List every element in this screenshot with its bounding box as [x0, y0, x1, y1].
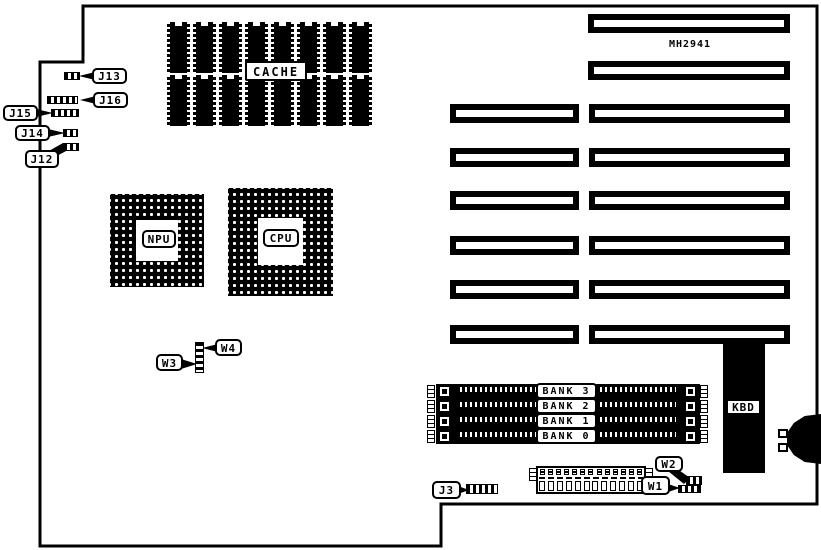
label-j12: J12	[25, 150, 59, 168]
chip-notch	[227, 22, 234, 26]
cache-chip	[167, 75, 190, 126]
cache-label: CACHE	[245, 61, 307, 81]
connector-pad	[613, 469, 618, 475]
label-j3: J3	[432, 481, 461, 499]
chip-notch	[331, 75, 338, 79]
bank-clip	[686, 402, 695, 411]
chip-notch	[357, 75, 364, 79]
din-pin-top	[778, 429, 788, 438]
bank-end-cap	[427, 400, 435, 413]
label-j15: J15	[3, 105, 38, 121]
connector-pad	[592, 481, 598, 491]
connector-pad	[566, 481, 572, 491]
expansion-slot-short	[450, 148, 579, 167]
expansion-slot-short	[450, 325, 579, 344]
kbd-label: KBD	[726, 399, 761, 415]
connector-pad	[548, 469, 553, 475]
connector-pad	[610, 481, 616, 491]
connector-pad	[628, 481, 634, 491]
bank-clip	[440, 402, 449, 411]
npu-label: NPU	[142, 230, 176, 248]
bank-end-cap	[700, 400, 708, 413]
bottom-connector-strip	[536, 466, 646, 494]
label-w4: W4	[215, 339, 242, 356]
label-j13: J13	[92, 68, 127, 84]
chip-notch	[201, 22, 208, 26]
expansion-slot-short	[450, 191, 579, 210]
cache-chip	[271, 75, 294, 126]
jumper-j12	[63, 143, 79, 151]
chip-notch	[331, 22, 338, 26]
connector-pad	[539, 481, 545, 491]
connector-pad	[540, 469, 545, 475]
cache-chip	[349, 75, 372, 126]
expansion-slot-long	[589, 191, 790, 210]
cache-chip	[193, 22, 216, 73]
connector-pad	[572, 469, 577, 475]
expansion-slot-short	[450, 280, 579, 299]
cache-chip	[193, 75, 216, 126]
bank-end-cap	[700, 415, 708, 428]
jumper-j13	[64, 72, 80, 80]
chip-notch	[253, 22, 260, 26]
connector-pad	[601, 481, 607, 491]
connector-pad	[548, 481, 554, 491]
label-j16: J16	[93, 92, 128, 108]
label-j14: J14	[15, 125, 50, 141]
bank-clip	[440, 387, 449, 396]
bank-end-cap	[700, 430, 708, 443]
bank-clip	[686, 387, 695, 396]
connector-pad	[557, 481, 563, 491]
connector-pad	[619, 481, 625, 491]
label-w3: W3	[156, 354, 183, 371]
label-w2: W2	[655, 456, 683, 472]
bank-end-cap	[700, 385, 708, 398]
keyboard-din-connector	[787, 414, 821, 464]
cache-chip	[167, 22, 190, 73]
cache-chip	[245, 75, 268, 126]
cache-chip	[219, 22, 242, 73]
connector-pad	[621, 469, 626, 475]
expansion-slot-short	[450, 104, 579, 123]
bank-clip	[440, 432, 449, 441]
chip-notch	[175, 75, 182, 79]
expansion-slot-long	[589, 325, 790, 344]
bank-label-0: BANK 0	[536, 428, 597, 444]
jumper-w2	[686, 476, 702, 485]
connector-pad	[564, 469, 569, 475]
bank-label-1: BANK 1	[536, 413, 597, 429]
chip-notch	[201, 75, 208, 79]
expansion-slot-full	[588, 61, 790, 80]
chip-notch	[357, 22, 364, 26]
jumper-w1	[678, 485, 701, 493]
connector-pad	[580, 469, 585, 475]
bank-end-cap	[427, 385, 435, 398]
bank-end-cap	[427, 415, 435, 428]
jumper-j3	[466, 484, 498, 494]
connector-pad	[629, 469, 634, 475]
chip-notch	[175, 22, 182, 26]
bank-label-2: BANK 2	[536, 398, 597, 414]
cache-chip	[323, 22, 346, 73]
din-pin-bottom	[778, 443, 788, 452]
chip-notch	[305, 22, 312, 26]
cpu-label: CPU	[263, 229, 299, 247]
chip-notch	[227, 75, 234, 79]
bank-clip	[686, 417, 695, 426]
jumper-j14	[63, 129, 78, 137]
bottom-connector-top-pads	[539, 469, 643, 475]
expansion-slot-short	[450, 236, 579, 255]
expansion-slot-long	[589, 280, 790, 299]
cache-chip	[297, 75, 320, 126]
cache-chip	[323, 75, 346, 126]
bank-label-3: BANK 3	[536, 383, 597, 399]
board-model-text: MH2941	[650, 39, 730, 50]
connector-pad	[605, 469, 610, 475]
connector-pad	[584, 481, 590, 491]
connector-pad	[556, 469, 561, 475]
expansion-slot-long	[589, 236, 790, 255]
bank-clip	[440, 417, 449, 426]
jumper-j15	[51, 109, 79, 117]
label-w1: W1	[641, 476, 670, 495]
cache-chip	[349, 22, 372, 73]
connector-pad	[575, 481, 581, 491]
bank-clip	[686, 432, 695, 441]
expansion-slot-long	[589, 104, 790, 123]
expansion-slot-full	[588, 14, 790, 33]
cache-chip-row	[167, 75, 372, 126]
connector-pad	[637, 469, 642, 475]
bottom-connector-bottom-pads	[539, 481, 643, 491]
jumper-w3-w4	[195, 342, 204, 373]
connector-pad	[597, 469, 602, 475]
expansion-slot-long	[589, 148, 790, 167]
motherboard-diagram: CACHE J13 J16 J15 J14 J12 NPU CPU W3 W4 …	[0, 0, 821, 550]
chip-notch	[279, 22, 286, 26]
bottom-connector-divider	[539, 477, 643, 479]
jumper-j16	[47, 96, 78, 104]
connector-pad	[588, 469, 593, 475]
cache-chip	[219, 75, 242, 126]
bank-end-cap	[427, 430, 435, 443]
